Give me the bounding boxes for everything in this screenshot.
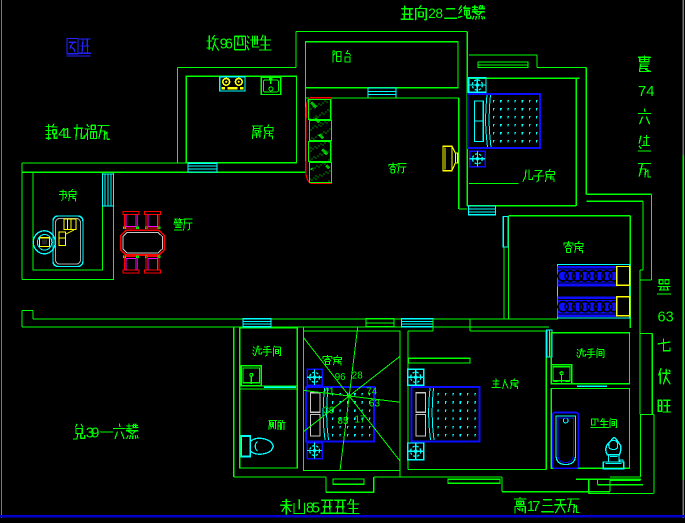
svg-text:85: 85 [306,500,320,516]
svg-text:96: 96 [335,372,346,383]
svg-text:39: 39 [324,406,335,417]
svg-text:74: 74 [638,84,655,100]
svg-text:28: 28 [352,371,363,382]
svg-text:63: 63 [658,310,674,326]
svg-text:96: 96 [220,37,233,53]
svg-text:63: 63 [369,399,380,410]
svg-text:17: 17 [355,415,366,426]
svg-text:39: 39 [86,426,100,442]
svg-text:74: 74 [366,387,377,398]
svg-text:28: 28 [428,6,443,21]
svg-text:41: 41 [58,125,71,142]
svg-text:85: 85 [338,416,349,427]
svg-text:17: 17 [527,499,541,515]
svg-text:41: 41 [324,387,335,398]
